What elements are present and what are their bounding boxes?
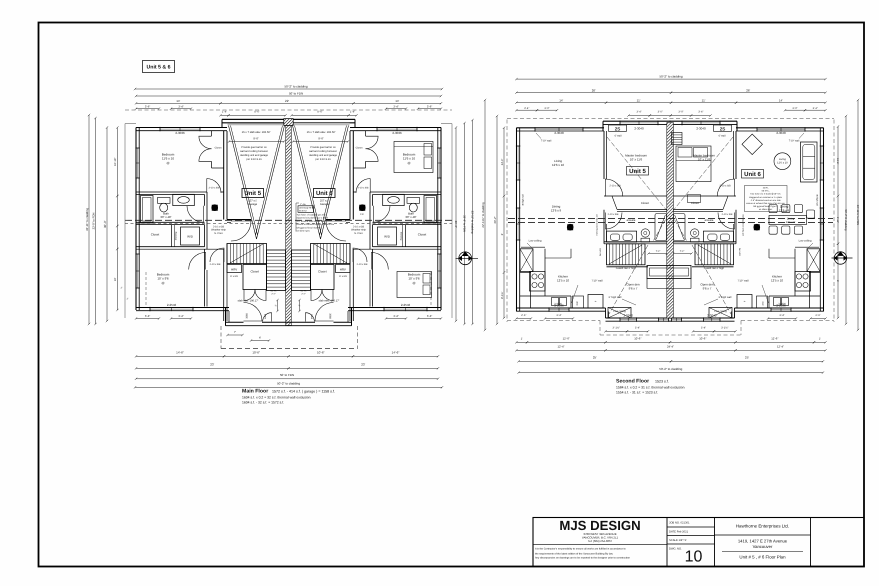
svg-text:50'-2" to cladding: 50'-2" to cladding: [660, 75, 683, 79]
svg-text:9'6 x 7: 9'6 x 7: [629, 287, 638, 291]
svg-text:12'-6": 12'-6": [563, 337, 570, 341]
svg-text:Dn 14 R: Dn 14 R: [599, 248, 602, 256]
svg-text:3'-0": 3'-0": [792, 107, 797, 110]
svg-text:16 x 7 slab elev. 193.50': 16 x 7 slab elev. 193.50': [307, 131, 336, 134]
svg-text:Closet: Closet: [641, 201, 649, 205]
svg-text:10' x 11'6: 10' x 11'6: [698, 158, 711, 162]
svg-text:Garage: Garage: [248, 203, 257, 206]
svg-text:slab elev. 196.17': slab elev. 196.17': [238, 300, 259, 303]
svg-text:10' x 11'6: 10' x 11'6: [630, 158, 643, 162]
svg-text:16 RI,: 16 RI,: [763, 187, 769, 190]
svg-text:25': 25': [593, 356, 597, 360]
svg-text:1554 s.f. - 31 s.f. = 1523 s.f: 1554 s.f. - 31 s.f. = 1523 s.f.: [616, 390, 658, 394]
svg-text:12'-6": 12'-6": [771, 337, 778, 341]
svg-text:per 9.10.9.16: per 9.10.9.16: [246, 158, 262, 161]
svg-text:≈: ≈: [744, 300, 746, 304]
svg-text:Low ceiling: Low ceiling: [799, 240, 812, 243]
svg-text:36 BTU: 36 BTU: [299, 210, 307, 213]
svg-text:25': 25': [745, 356, 749, 360]
svg-text:Shelving: Shelving: [400, 232, 403, 241]
svg-text:23': 23': [361, 363, 365, 367]
svg-text:1'-4": 1'-4": [222, 111, 227, 114]
svg-text:Guard rail 3' high: Guard rail 3' high: [704, 267, 725, 270]
svg-text:1'-4": 1'-4": [350, 111, 355, 114]
svg-text:11': 11': [637, 98, 641, 102]
svg-text:Vancouver: Vancouver: [753, 544, 773, 549]
svg-text:9'-6": 9'-6": [318, 137, 324, 141]
svg-text:Guard rail 3' high: Guard rail 3' high: [616, 267, 637, 270]
svg-text:2.6': 2.6': [360, 213, 364, 216]
svg-text:3068: 3068: [246, 313, 249, 319]
svg-text:2-3036: 2-3036: [175, 131, 185, 135]
svg-text:14'-6": 14'-6": [176, 351, 184, 355]
svg-text:dwelling unit and garage: dwelling unit and garage: [309, 154, 338, 157]
svg-text:14': 14': [176, 99, 180, 103]
svg-text:6' x 6'8: 6' x 6'8: [339, 275, 347, 278]
svg-text:shelving above d/by unit: shelving above d/by unit: [596, 214, 599, 236]
svg-text:2S: 2S: [615, 126, 621, 131]
svg-text:shelving above d/by unit: shelving above d/by unit: [742, 214, 745, 236]
svg-text:3'-4": 3'-4": [178, 315, 183, 318]
svg-text:3'-1½": 3'-1½": [721, 327, 728, 330]
svg-text:30'-3": 30'-3": [103, 220, 107, 228]
svg-text:3068: 3068: [329, 313, 332, 319]
svg-text:Closet: Closet: [691, 201, 699, 205]
svg-text:46 high wall: 46 high wall: [522, 194, 525, 206]
svg-text:Closet: Closet: [418, 233, 427, 237]
svg-text:30" x 48": 30" x 48": [160, 215, 171, 219]
svg-text:33'-11" to cladding: 33'-11" to cladding: [85, 208, 89, 231]
svg-text:Low ceiling: Low ceiling: [529, 240, 542, 243]
svg-text:22'-11¾" to FDN: 22'-11¾" to FDN: [856, 205, 860, 225]
svg-text:2-2036: 2-2036: [778, 303, 786, 306]
svg-text:Low ceiling: Low ceiling: [613, 310, 626, 313]
svg-text:Low ceiling: Low ceiling: [714, 310, 727, 313]
svg-text:14'-6": 14'-6": [392, 351, 400, 355]
svg-text:8'-6": 8'-6": [254, 111, 259, 114]
svg-text:W/D: W/D: [187, 235, 194, 239]
svg-text:Closet: Closet: [250, 270, 259, 274]
svg-text:Unit # 5 , # 6 Floor Plan: Unit # 5 , # 6 Floor Plan: [739, 555, 786, 560]
svg-text:3'-0": 3'-0": [658, 111, 663, 114]
svg-text:Provide gas barrier on: Provide gas barrier on: [241, 146, 267, 149]
svg-text:@: @: [166, 161, 169, 165]
svg-text:2-10 x 6/8: 2-10 x 6/8: [608, 213, 619, 216]
svg-text:2-10 x 6/8: 2-10 x 6/8: [210, 263, 221, 266]
svg-text:3'-4": 3'-4": [698, 111, 703, 114]
svg-text:2'-2": 2'-2": [301, 292, 306, 295]
svg-text:1" dia: 1" dia: [300, 203, 306, 206]
svg-text:S. Core: S. Core: [214, 232, 223, 235]
svg-text:9'-6": 9'-6": [253, 137, 259, 141]
svg-text:SCALE 1/4"=1': SCALE 1/4"=1': [669, 539, 687, 542]
svg-text:5'-6": 5'-6": [427, 315, 432, 318]
svg-text:@: @: [161, 281, 164, 285]
svg-text:10'-6": 10'-6": [634, 337, 641, 341]
svg-text:ensure at exhaust of max of an: ensure at exhaust of max of an ins use: [297, 223, 335, 226]
svg-text:2-3040: 2-3040: [634, 127, 644, 131]
svg-text:Any discrepancies on drawings: Any discrepancies on drawings are to be …: [535, 557, 631, 560]
svg-text:HRV: HRV: [231, 268, 237, 272]
svg-text:1604 s.f. x 0.2 = 32 s.f. ther: 1604 s.f. x 0.2 = 32 s.f. thermal wall e…: [242, 395, 311, 399]
svg-text:-2.5" dimamul wool on one side: -2.5" dimamul wool on one side: [750, 199, 781, 202]
svg-text:12'5 x 10: 12'5 x 10: [557, 279, 569, 283]
svg-text:22': 22': [285, 99, 289, 103]
svg-text:24'-3": 24'-3": [501, 159, 504, 166]
svg-text:50' to FDN: 50' to FDN: [289, 92, 303, 96]
svg-text:Unit Body RI-90: Unit Body RI-90: [299, 207, 315, 210]
svg-text:10'-10": 10'-10": [114, 158, 117, 166]
svg-text:5'-6": 5'-6": [145, 105, 150, 108]
svg-text:Hawthorne Enterprises Ltd.: Hawthorne Enterprises Ltd.: [736, 524, 789, 529]
svg-text:3.5" mineral wool on site atti: 3.5" mineral wool on site attic: [297, 220, 326, 223]
svg-text:7'10" wall: 7'10" wall: [541, 140, 552, 143]
svg-text:6' wall: 6' wall: [719, 135, 726, 138]
svg-text:12'6 x 16: 12'6 x 16: [552, 163, 564, 167]
svg-text:on slime spec: on slime spec: [297, 230, 311, 233]
svg-text:14': 14': [779, 98, 783, 102]
svg-text:10: 10: [685, 549, 703, 566]
svg-text:per 9.10.9.16: per 9.10.9.16: [315, 158, 331, 161]
svg-text:3'-4": 3'-4": [393, 315, 398, 318]
svg-text:5'-6": 5'-6": [145, 315, 150, 318]
svg-text:1584 s.f. x 0.2 = 31 s.f. ther: 1584 s.f. x 0.2 = 31 s.f. thermal wall e…: [616, 385, 685, 389]
svg-text:2-2546: 2-2546: [401, 303, 411, 307]
svg-text:Garage: Garage: [320, 203, 329, 206]
svg-text:1572 s.f. - 414 s.f. ( garage: 1572 s.f. - 414 s.f. ( garage ) = 1158 s…: [272, 390, 335, 394]
svg-text:7'10" wall: 7'10" wall: [592, 280, 603, 283]
svg-text:7'10" wall: 7'10" wall: [738, 280, 749, 283]
svg-text:10': 10': [114, 277, 117, 281]
svg-text:30" x 48": 30" x 48": [405, 215, 416, 219]
svg-text:3'-4": 3'-4": [637, 111, 642, 114]
svg-text:Dn 14 R: Dn 14 R: [738, 248, 741, 256]
svg-text:10'-6": 10'-6": [699, 337, 706, 341]
svg-text:8'-6": 8'-6": [317, 111, 322, 114]
svg-text:3'-0": 3'-0": [544, 107, 549, 110]
svg-text:33'-9" to FDN: 33'-9" to FDN: [91, 213, 95, 230]
svg-text:2'-2": 2'-2": [271, 292, 276, 295]
svg-text:staggered on common w 1 x plat: staggered on common w 1 x plate: [749, 196, 783, 199]
svg-text:7'-2": 7'-2": [680, 250, 685, 253]
svg-text:2-3048: 2-3048: [554, 131, 564, 135]
svg-text:2-10 x 6/8: 2-10 x 6/8: [209, 186, 220, 189]
svg-text:Unit 6: Unit 6: [316, 190, 333, 197]
svg-text:11'6 x 10: 11'6 x 10: [162, 157, 175, 161]
svg-text:12'6 x 10: 12'6 x 10: [777, 162, 788, 165]
svg-text:Main Floor: Main Floor: [242, 389, 268, 395]
svg-text:12'6 x 9': 12'6 x 9': [786, 221, 796, 224]
svg-text:12'-4": 12'-4": [557, 345, 564, 349]
svg-text:2-3036: 2-3036: [392, 131, 402, 135]
svg-text:on slime spec: on slime spec: [759, 208, 773, 211]
svg-text:ensuite: ensuite: [627, 219, 636, 222]
svg-text:1523 s.f.: 1523 s.f.: [655, 380, 669, 384]
svg-text:11': 11': [702, 98, 706, 102]
svg-text:2'-6": 2'-6": [815, 314, 820, 317]
svg-text:S. Core: S. Core: [354, 232, 363, 235]
svg-text:Tel: (604) 254-0667: Tel: (604) 254-0667: [588, 539, 613, 543]
svg-text:HRV: HRV: [340, 268, 346, 272]
svg-text:GL PL: GL PL: [270, 290, 277, 293]
svg-text:Closet: Closet: [356, 147, 363, 150]
svg-text:6' high wall: 6' high wall: [609, 296, 622, 299]
svg-text:Unit 5: Unit 5: [629, 168, 646, 175]
svg-text:50'-2" to cladding: 50'-2" to cladding: [285, 85, 308, 89]
svg-text:1868: 1868: [310, 314, 313, 320]
svg-text:26': 26': [746, 88, 750, 92]
svg-text:12'-4": 12'-4": [777, 345, 784, 349]
svg-text:10' x 9'6: 10' x 9'6: [157, 277, 169, 281]
svg-text:16 x 7 slab elev. 193.50': 16 x 7 slab elev. 193.50': [242, 131, 271, 134]
svg-text:2'-10": 2'-10": [836, 217, 839, 223]
svg-text:DATE Feb 2021: DATE Feb 2021: [669, 531, 689, 534]
svg-text:3'-4": 3'-4": [524, 107, 529, 110]
svg-text:MJS DESIGN: MJS DESIGN: [559, 518, 640, 533]
svg-text:2-2546: 2-2546: [167, 303, 177, 307]
svg-text:2-10 x 6/8: 2-10 x 6/8: [722, 213, 733, 216]
svg-text:13'-6": 13'-6": [836, 158, 839, 164]
svg-text:2-2036: 2-2036: [554, 303, 562, 306]
svg-text:3'-4": 3'-4": [779, 314, 784, 317]
svg-text:8'-1½": 8'-1½": [501, 291, 504, 298]
svg-text:1868: 1868: [264, 313, 267, 319]
svg-text:10'-6": 10'-6": [252, 351, 260, 355]
svg-text:2-10 x 6/8: 2-10 x 6/8: [719, 185, 731, 188]
svg-text:Two nose d x 4 studs @16" OC: Two nose d x 4 studs @16" OC: [750, 193, 781, 196]
svg-text:2-10 x 6/8: 2-10 x 6/8: [358, 186, 369, 189]
svg-text:ensuite: ensuite: [705, 219, 714, 222]
svg-text:2S: 2S: [720, 126, 726, 131]
svg-text:@: @: [407, 161, 410, 165]
svg-text:3'-0": 3'-0": [678, 111, 683, 114]
svg-text:It is the Contractor's respons: It is the Contractor's responsibility to…: [535, 548, 626, 551]
svg-text:dwelling unit and garage: dwelling unit and garage: [240, 154, 269, 157]
svg-text:W/D: W/D: [384, 235, 391, 239]
svg-text:10' x 9'6: 10' x 9'6: [408, 277, 420, 281]
svg-text:2-10 x 6/8: 2-10 x 6/8: [357, 263, 368, 266]
svg-text:24'-4": 24'-4": [667, 345, 674, 349]
svg-text:Closet: Closet: [151, 233, 160, 237]
svg-text:Living: Living: [779, 158, 786, 161]
svg-text:Unit 5: Unit 5: [244, 190, 261, 197]
svg-text:10'-6": 10'-6": [317, 351, 325, 355]
svg-text:Provide gas barrier on: Provide gas barrier on: [310, 146, 336, 149]
svg-text:ensure at exhaust fan max of a: ensure at exhaust fan max of an ins use: [746, 202, 786, 205]
svg-text:2-3040: 2-3040: [696, 127, 706, 131]
svg-text:Closet: Closet: [318, 270, 327, 274]
svg-text:50'-2" to cladding: 50'-2" to cladding: [659, 367, 682, 371]
svg-text:@: @: [412, 281, 415, 285]
svg-text:DWG. NO.: DWG. NO.: [669, 548, 682, 551]
svg-text:5/8 gyproof board Type X: 5/8 gyproof board Type X: [753, 205, 778, 208]
svg-text:1419, 1427 E 27th Avenue: 1419, 1427 E 27th Avenue: [738, 539, 788, 544]
svg-text:Unit 6: Unit 6: [744, 171, 761, 178]
svg-text:46 high wall: 46 high wall: [816, 194, 819, 206]
svg-text:14': 14': [559, 98, 563, 102]
svg-text:5/8 gyproof insul riser R-4: 5/8 gyproof insul riser R-4: [297, 226, 323, 229]
svg-text:50'-2" E cladding: 50'-2" E cladding: [844, 210, 848, 231]
svg-text:1604 s.f. - 32 s.f. = 1572 s.f: 1604 s.f. - 32 s.f. = 1572 s.f.: [242, 400, 284, 404]
svg-text:3'-4": 3'-4": [701, 327, 706, 330]
svg-text:30'-2": 30'-2": [493, 216, 497, 223]
svg-text:3'-4": 3'-4": [556, 314, 561, 317]
svg-text:6' x 6'8: 6' x 6'8: [230, 275, 238, 278]
svg-text:5'-6": 5'-6": [427, 105, 432, 108]
svg-text:2-10 x 6/8: 2-10 x 6/8: [609, 185, 621, 188]
svg-text:7'-2": 7'-2": [656, 250, 661, 253]
svg-text:33'-9" to FDN: 33'-9" to FDN: [462, 215, 466, 232]
svg-text:wall and ceiling between: wall and ceiling between: [309, 150, 338, 153]
svg-text:3'-4": 3'-4": [635, 327, 640, 330]
svg-text:3'-4": 3'-4": [813, 107, 818, 110]
svg-text:26': 26': [592, 88, 596, 92]
svg-text:30'-3": 30'-3": [454, 221, 458, 228]
svg-text:the requirements of the latest: the requirements of the latest edition o…: [535, 553, 613, 556]
svg-text:Second Floor: Second Floor: [616, 379, 649, 385]
svg-text:6' high wall: 6' high wall: [719, 296, 732, 299]
svg-text:Shelving: Shelving: [175, 231, 178, 240]
svg-text:Closet: Closet: [215, 147, 222, 150]
svg-text:wall and ceiling between: wall and ceiling between: [240, 150, 269, 153]
svg-text:12'5 x 10: 12'5 x 10: [771, 279, 783, 283]
svg-text:JOB NO. 021301: JOB NO. 021301: [669, 522, 690, 525]
svg-text:2'-6": 2'-6": [521, 314, 526, 317]
svg-text:3'-1½": 3'-1½": [613, 327, 620, 330]
svg-text:23': 23': [210, 363, 214, 367]
svg-text:6' wall: 6' wall: [615, 135, 622, 138]
svg-text:50 N°C,: 50 N°C,: [762, 190, 770, 193]
svg-text:22'-11¾" to cladding: 22'-11¾" to cladding: [481, 202, 485, 228]
svg-text:≈: ≈: [595, 300, 597, 304]
svg-text:Unit 5 & 6: Unit 5 & 6: [147, 64, 171, 70]
svg-text:clippered 1/2 plumbing 2 x 15m: clippered 1/2 plumbing 2 x 15mil: [297, 217, 329, 220]
svg-text:11'6 x 10: 11'6 x 10: [403, 157, 416, 161]
svg-text:14': 14': [395, 99, 399, 103]
svg-text:50'-2" to cladding: 50'-2" to cladding: [277, 382, 300, 386]
svg-text:9'6 x 7: 9'6 x 7: [703, 287, 712, 291]
svg-text:2-3048: 2-3048: [776, 131, 786, 135]
svg-text:7'10" wall: 7'10" wall: [789, 140, 800, 143]
svg-text:Two hose 1 ft outside gas min: Two hose 1 ft outside gas min: [297, 214, 327, 217]
svg-text:50' to FDN: 50' to FDN: [280, 373, 294, 377]
svg-text:33'-11" to cladding: 33'-11" to cladding: [470, 211, 474, 234]
svg-text:slab elev. 196.17': slab elev. 196.17': [319, 300, 340, 303]
svg-text:3'-4": 3'-4": [178, 105, 183, 108]
svg-text:3'-4": 3'-4": [393, 105, 398, 108]
svg-text:12'6 x 9: 12'6 x 9: [779, 209, 790, 213]
svg-text:12'6 x 9: 12'6 x 9: [551, 209, 562, 213]
svg-text:GL PL: GL PL: [300, 290, 307, 293]
